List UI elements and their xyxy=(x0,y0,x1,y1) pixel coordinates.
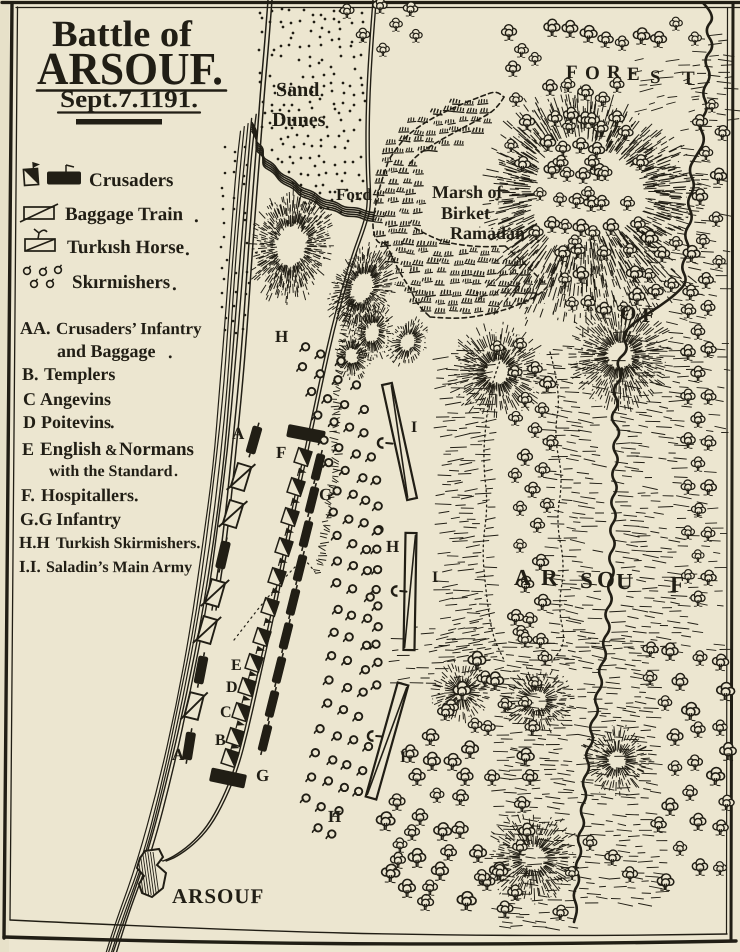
svg-text:F: F xyxy=(670,572,684,597)
svg-text:B: B xyxy=(215,732,226,749)
svg-text:Poitevins: Poitevins xyxy=(41,412,111,432)
svg-text:H: H xyxy=(275,327,288,346)
svg-text:Baggage Train: Baggage Train xyxy=(65,204,184,225)
svg-text:Turkish Skirmishers.: Turkish Skirmishers. xyxy=(56,535,200,552)
svg-text:H: H xyxy=(328,807,341,826)
svg-text:Skırnıishers: Skırnıishers xyxy=(72,272,170,293)
svg-text:Hospitallers.: Hospitallers. xyxy=(41,485,139,505)
svg-text:English: English xyxy=(40,439,102,460)
svg-text:O: O xyxy=(620,301,636,325)
svg-text:E: E xyxy=(22,439,34,459)
svg-text:S: S xyxy=(580,568,593,593)
svg-text:.: . xyxy=(185,239,190,260)
svg-text:Dunes: Dunes xyxy=(272,109,326,131)
svg-text:Angevins: Angevins xyxy=(40,389,111,409)
svg-text:Crusaders: Crusaders xyxy=(89,170,173,191)
svg-text:H: H xyxy=(386,537,399,556)
svg-text:D: D xyxy=(226,679,238,696)
svg-text:with the Standard: with the Standard xyxy=(49,463,173,480)
svg-text:.: . xyxy=(172,274,177,295)
svg-text:C: C xyxy=(220,704,232,721)
svg-text:&: & xyxy=(105,443,118,459)
svg-text:Saladin’s Main Army: Saladin’s Main Army xyxy=(46,559,192,576)
svg-text:A: A xyxy=(232,424,245,443)
svg-text:.: . xyxy=(194,206,199,227)
svg-text:R: R xyxy=(541,565,558,590)
svg-text:Turkısh Horse: Turkısh Horse xyxy=(67,237,184,258)
svg-text:S: S xyxy=(650,67,661,88)
svg-text:.: . xyxy=(110,412,115,432)
svg-text:.: . xyxy=(168,342,173,362)
svg-text:Templers: Templers xyxy=(44,364,115,384)
svg-text:F: F xyxy=(566,62,578,83)
svg-text:F: F xyxy=(642,303,655,327)
svg-text:.: . xyxy=(110,511,115,531)
svg-text:R: R xyxy=(607,62,621,83)
svg-text:G.G: G.G xyxy=(20,509,53,529)
svg-text:F: F xyxy=(276,443,286,462)
svg-text:Ramadan: Ramadan xyxy=(450,223,525,243)
svg-text:O: O xyxy=(597,567,615,592)
svg-text:I: I xyxy=(432,569,438,586)
svg-text:Sept.7.1191.: Sept.7.1191. xyxy=(60,87,198,113)
svg-text:I: I xyxy=(400,749,406,766)
svg-text:H.H: H.H xyxy=(19,533,50,552)
svg-text:T: T xyxy=(682,68,695,89)
svg-text:Marsh of: Marsh of xyxy=(432,182,504,202)
svg-text:Normans: Normans xyxy=(119,439,194,460)
svg-text:B.: B. xyxy=(22,364,39,384)
svg-text:and Baggage: and Baggage xyxy=(57,341,156,361)
svg-text:D: D xyxy=(23,412,36,432)
svg-text:I: I xyxy=(411,419,417,436)
svg-text:C: C xyxy=(23,389,36,409)
svg-text:U: U xyxy=(616,569,633,594)
svg-text:O: O xyxy=(585,63,600,84)
svg-text:Ford: Ford xyxy=(336,185,372,204)
svg-text:G: G xyxy=(256,766,269,785)
svg-text:A: A xyxy=(172,745,185,764)
svg-text:.: . xyxy=(174,463,178,480)
svg-text:F.: F. xyxy=(21,485,35,505)
svg-text:Crusaders’ Infantry: Crusaders’ Infantry xyxy=(56,319,202,338)
svg-text:AA.: AA. xyxy=(20,318,51,338)
svg-text:E: E xyxy=(627,64,640,85)
svg-text:I.I.: I.I. xyxy=(19,557,41,576)
svg-text:ARSOUF: ARSOUF xyxy=(172,884,264,908)
svg-text:E: E xyxy=(231,657,242,674)
svg-text:Birket: Birket xyxy=(441,203,490,223)
svg-text:Sand: Sand xyxy=(276,79,319,101)
svg-text:A: A xyxy=(514,565,531,590)
